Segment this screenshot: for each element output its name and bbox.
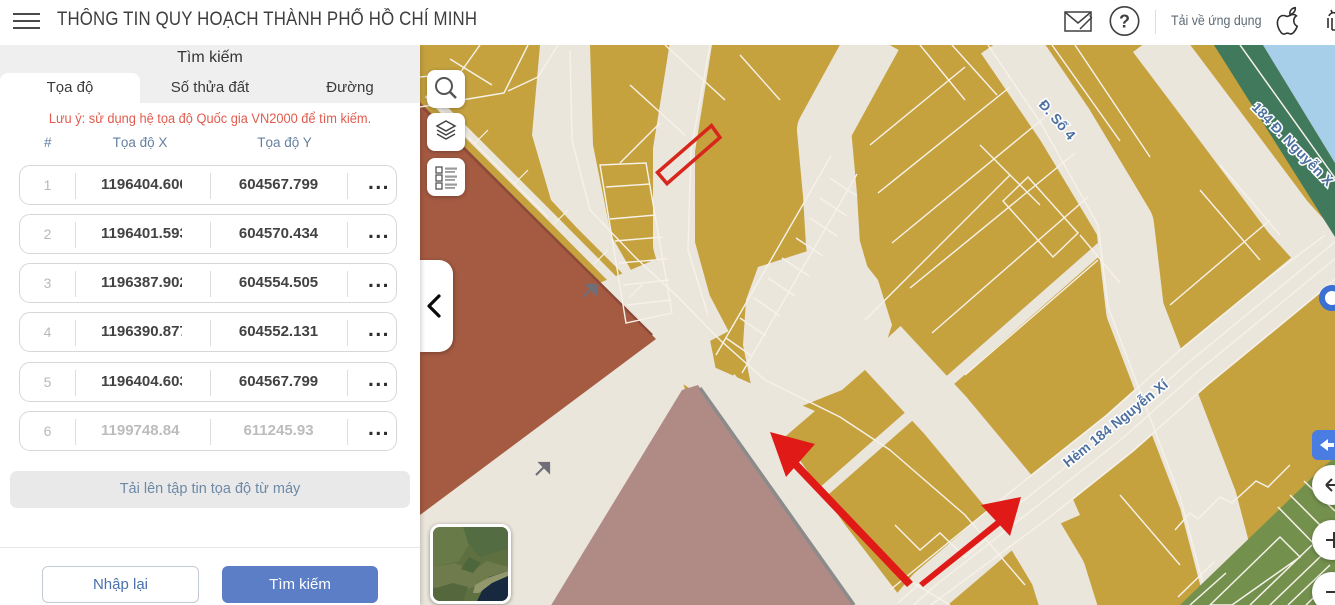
svg-text:?: ? (1119, 12, 1130, 32)
